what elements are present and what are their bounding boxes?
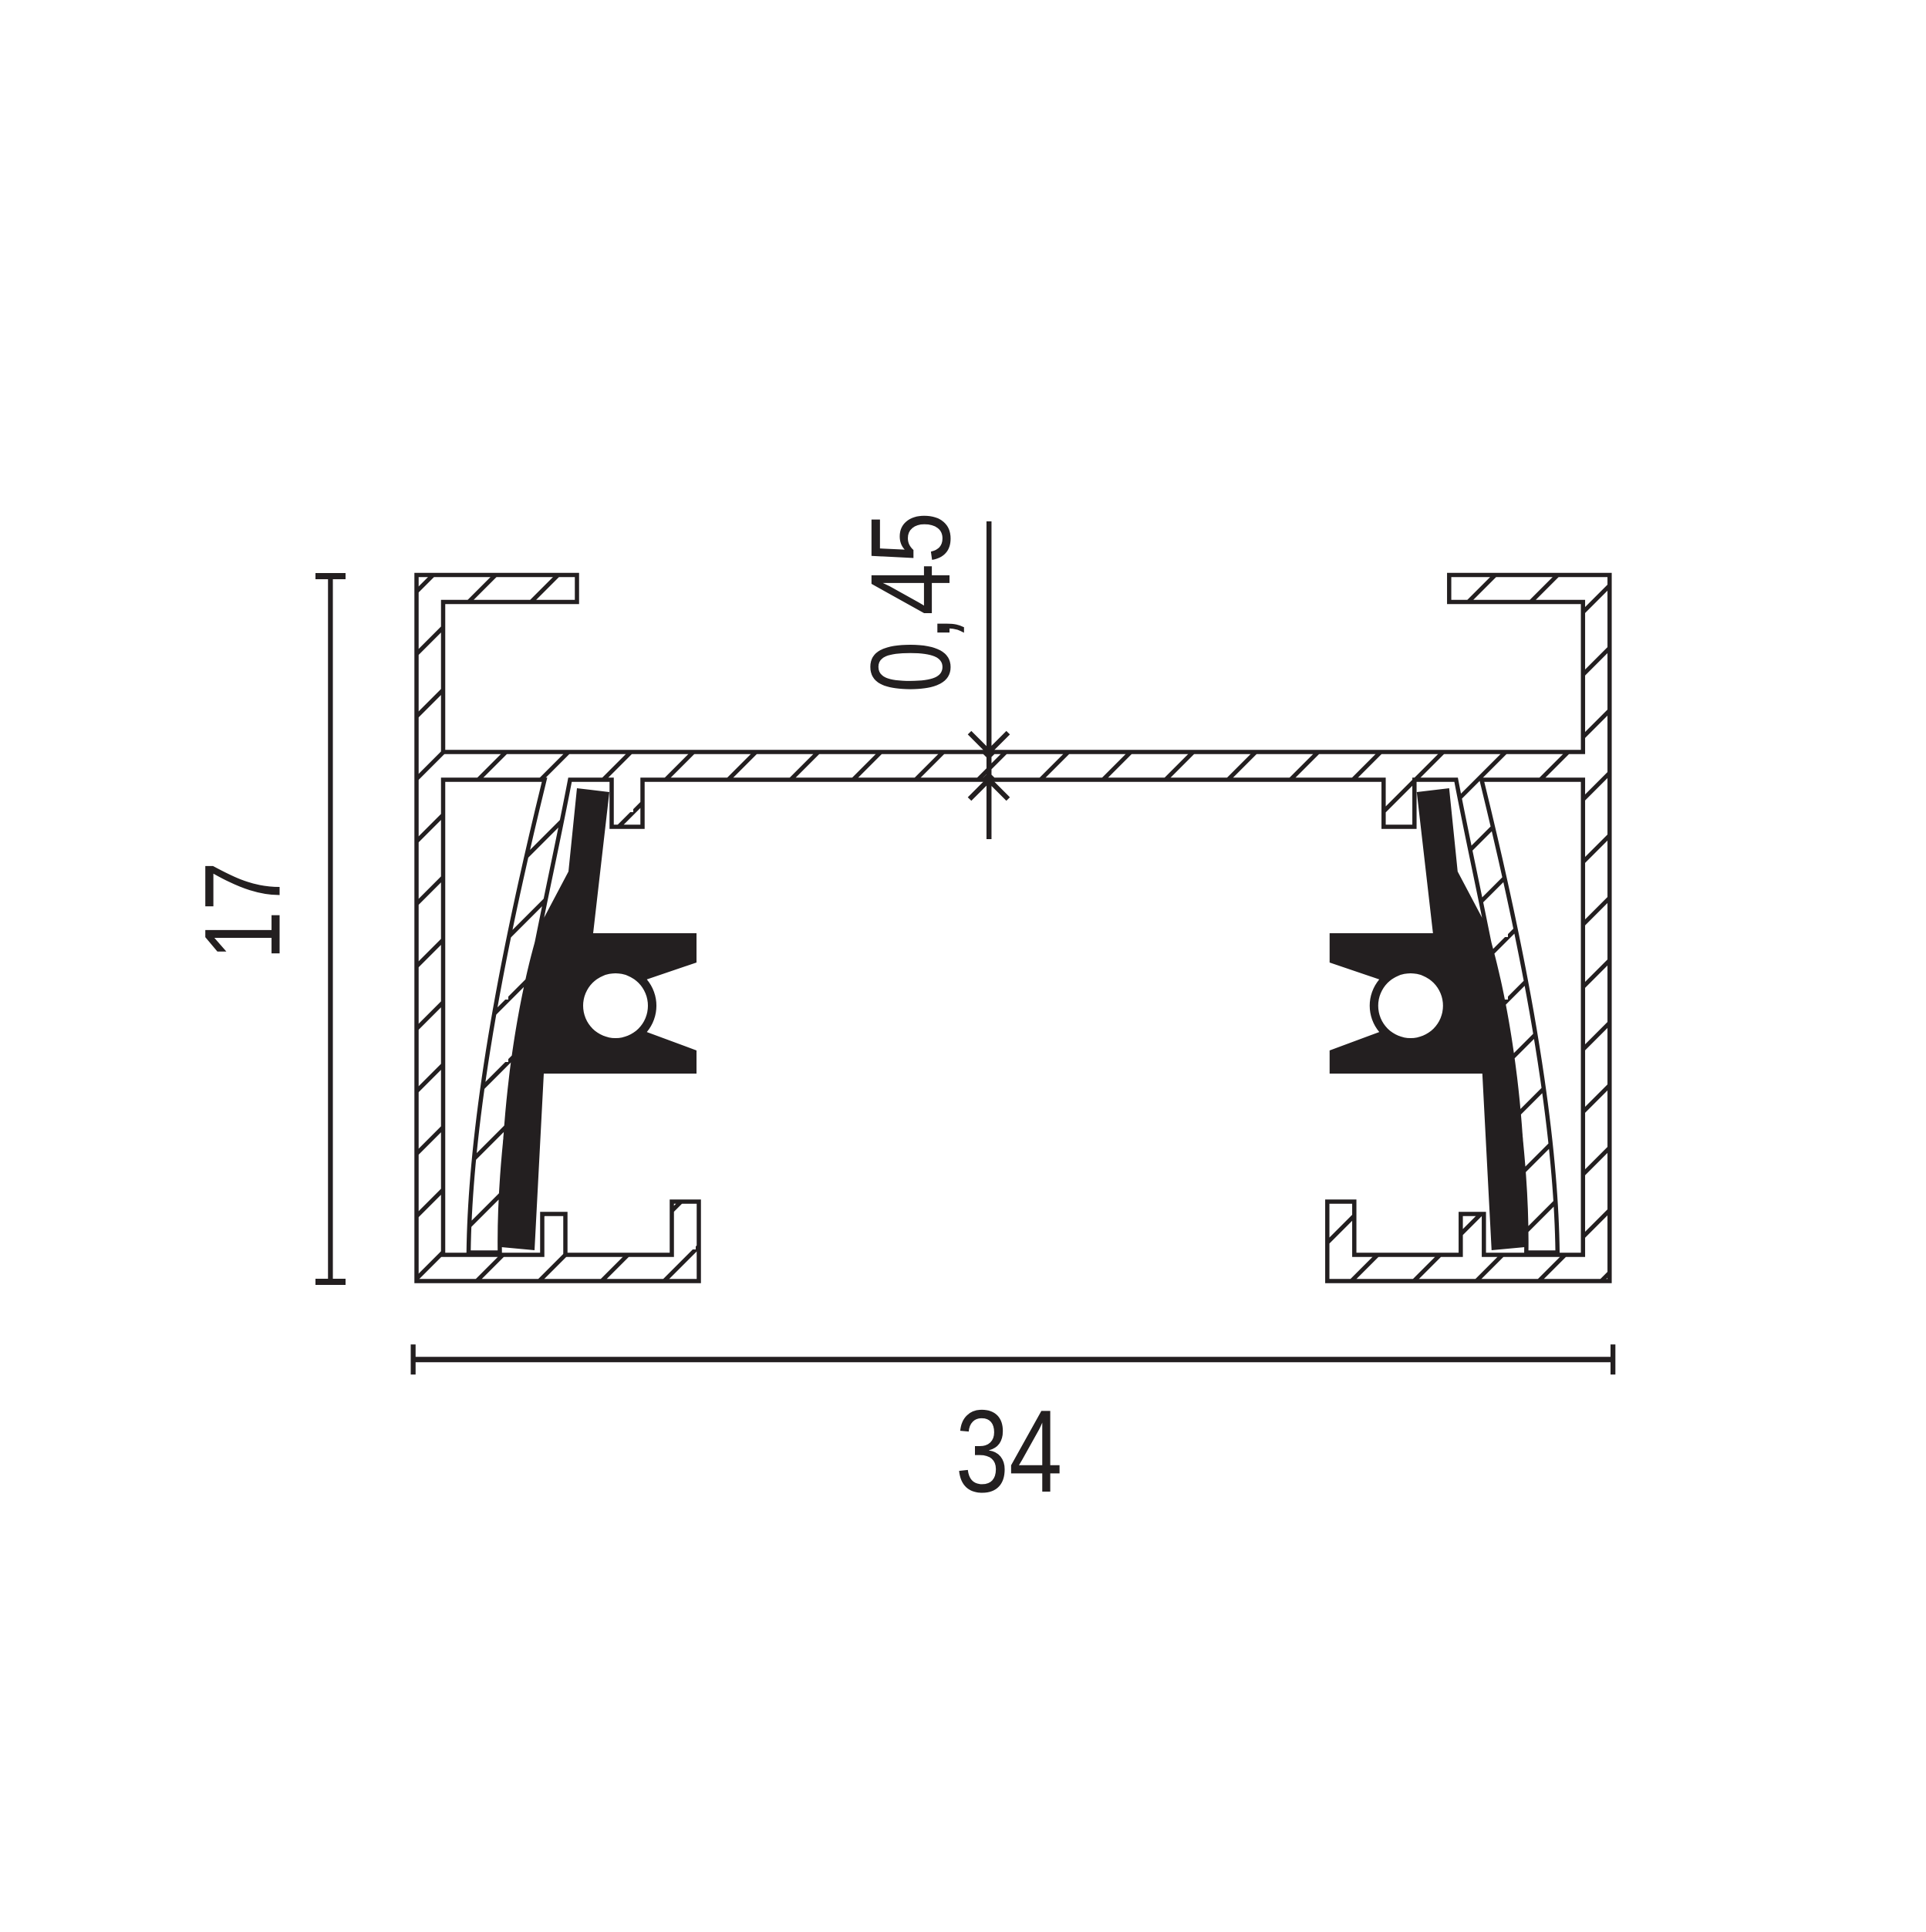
svg-text:34: 34 [956,1386,1063,1517]
svg-text:17: 17 [183,861,303,960]
svg-text:0,45: 0,45 [848,512,974,693]
